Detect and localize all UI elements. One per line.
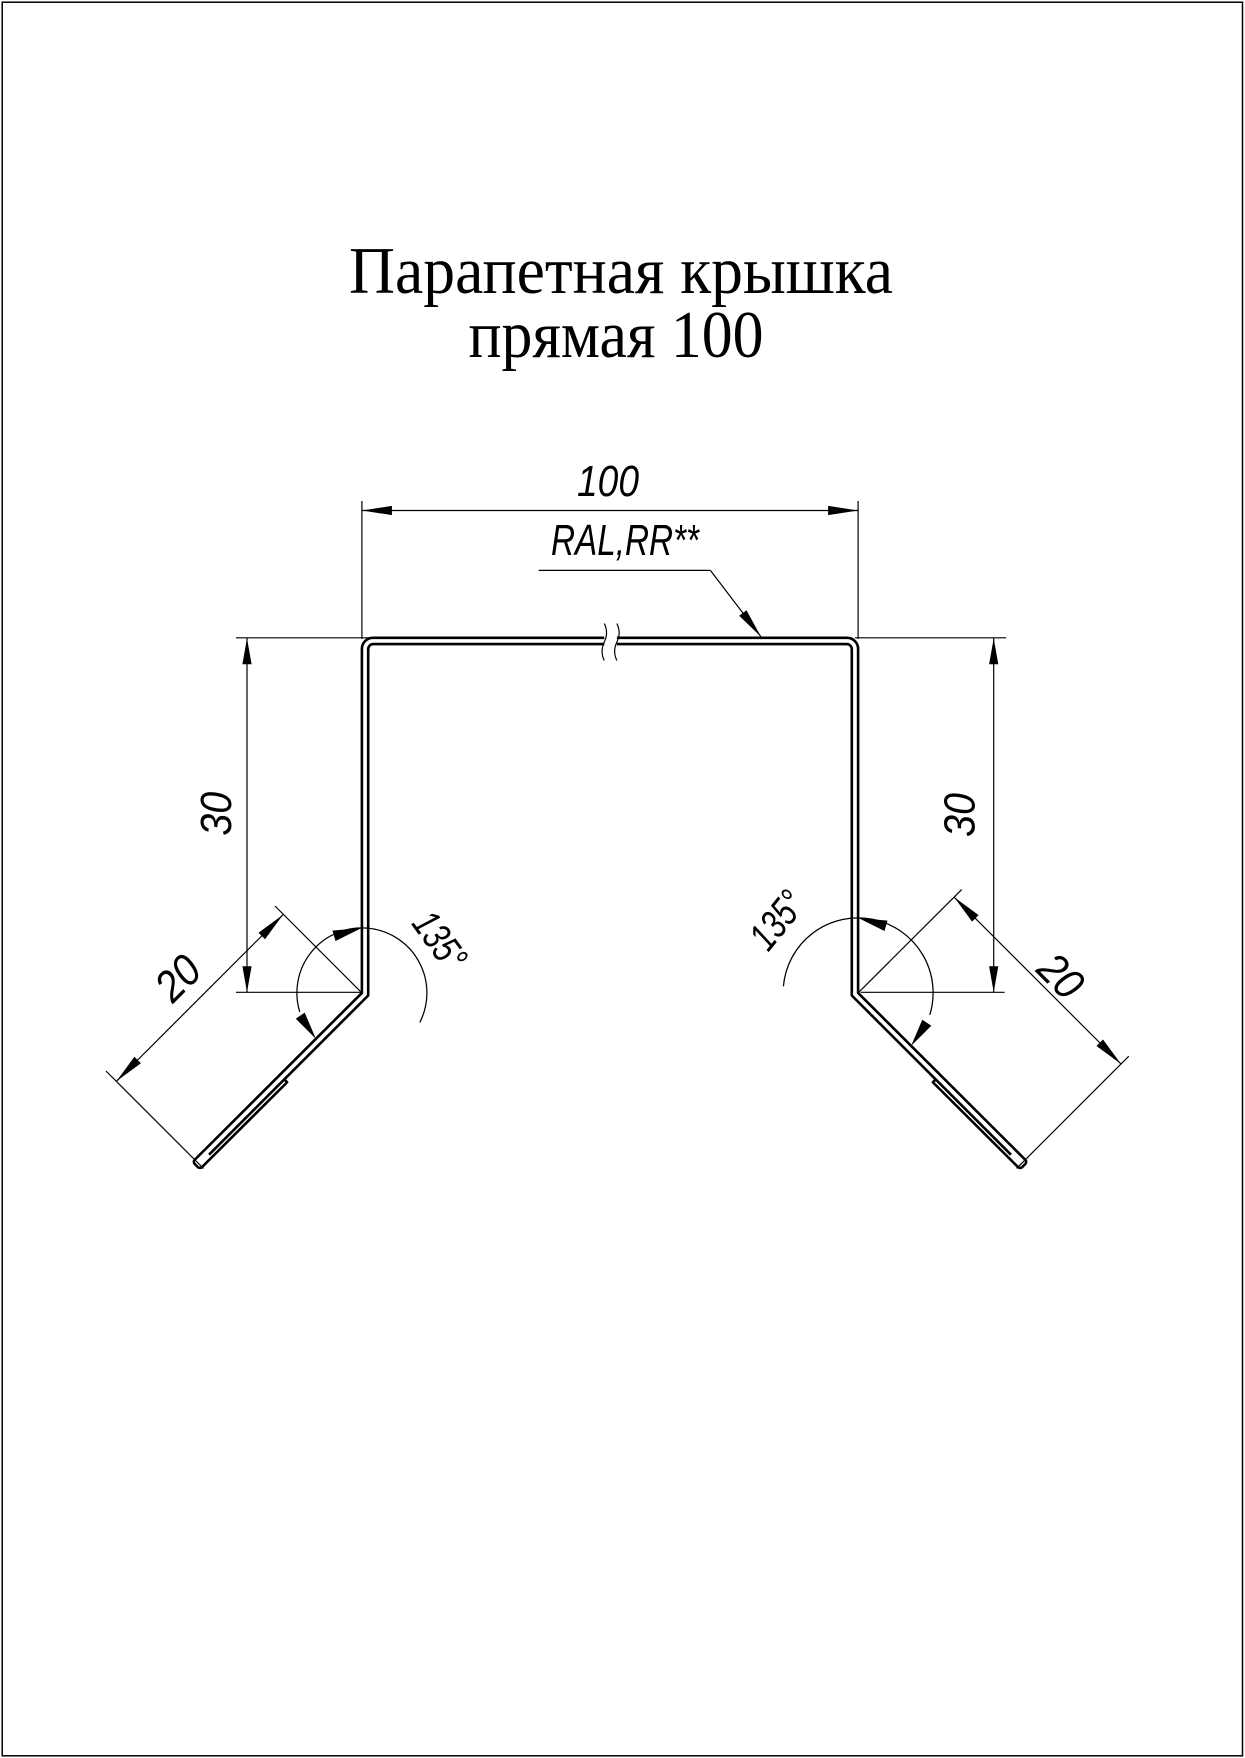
svg-text:100: 100 <box>577 457 639 506</box>
svg-text:30: 30 <box>192 791 241 835</box>
svg-text:135°: 135° <box>403 903 475 979</box>
svg-text:30: 30 <box>936 793 985 837</box>
svg-text:Парапетная крышка: Парапетная крышка <box>349 234 893 308</box>
svg-text:20: 20 <box>1027 943 1094 1010</box>
svg-text:135°: 135° <box>741 883 814 959</box>
svg-text:RAL,RR**: RAL,RR** <box>551 516 700 565</box>
svg-text:20: 20 <box>145 945 212 1012</box>
svg-text:прямая 100: прямая 100 <box>469 298 764 372</box>
